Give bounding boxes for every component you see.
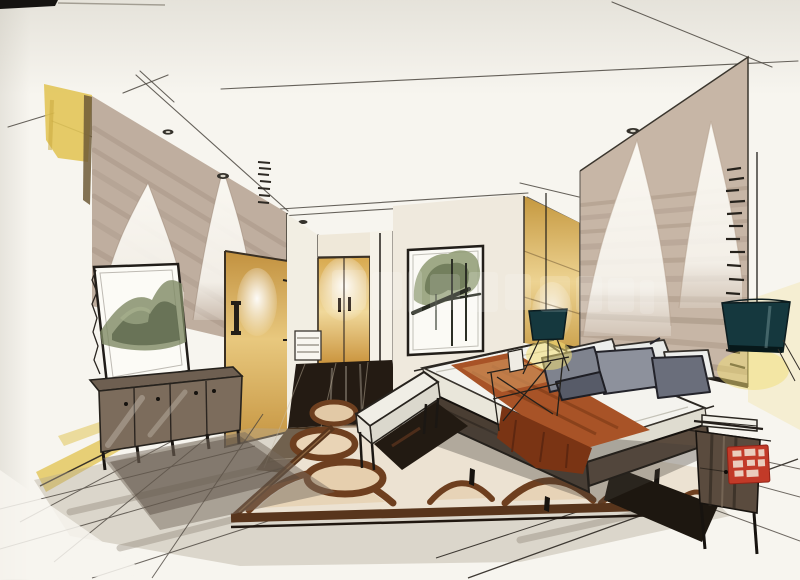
downlight-icon: [217, 173, 229, 179]
leaning-painting: [92, 264, 189, 384]
yellow-streak: [50, 100, 52, 150]
cabinet-knob: [194, 391, 198, 395]
sketch-canvas: [0, 0, 800, 580]
bed-leg: [544, 496, 550, 512]
table-frame-decor: [508, 349, 524, 372]
pendant-glow: [717, 350, 789, 390]
artist-seal-stamp: [727, 445, 770, 484]
towel-rack: [295, 331, 321, 360]
pillow-gray: [652, 356, 710, 398]
bed-leg: [469, 468, 475, 486]
cabinet-knob: [124, 402, 128, 406]
cabinet-knob: [156, 397, 160, 401]
bedroom-sketch: [0, 0, 800, 580]
cabinet-knob: [212, 389, 216, 393]
nightstand-knob: [724, 470, 728, 474]
downlight-icon: [163, 129, 174, 134]
lamp-shade: [529, 309, 567, 340]
door-handle: [234, 303, 239, 333]
pillow-gray: [596, 348, 662, 394]
rug-ring: [312, 402, 356, 424]
pendant-shade: [722, 302, 790, 352]
lamp-glow: [526, 340, 572, 370]
